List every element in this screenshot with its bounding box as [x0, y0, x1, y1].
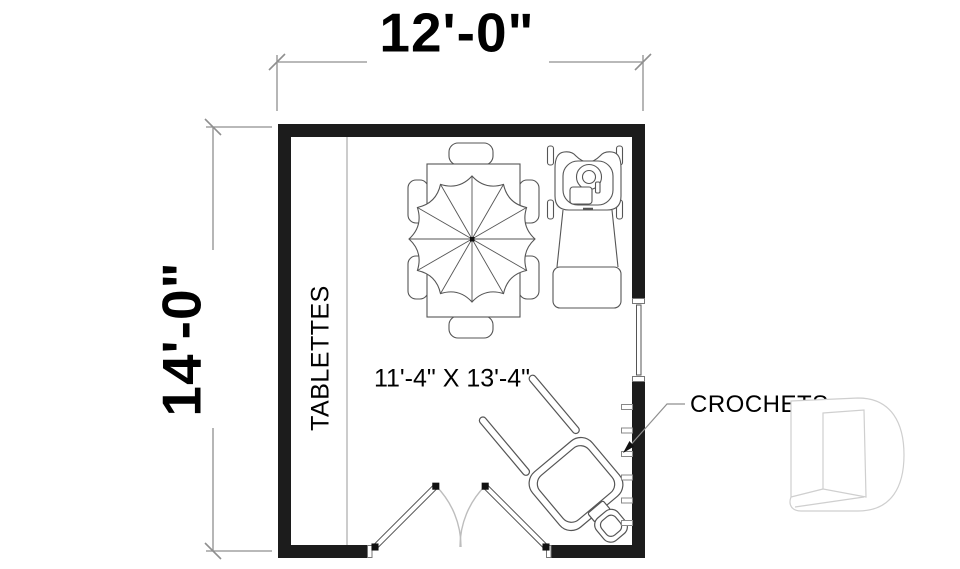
- floor-plan: 12'-0" 14'-0" TABLETTES 11'-4" X 13'-4" …: [0, 0, 960, 569]
- watermark-d-logo-icon: [790, 398, 904, 511]
- watermark-layer: [0, 0, 960, 569]
